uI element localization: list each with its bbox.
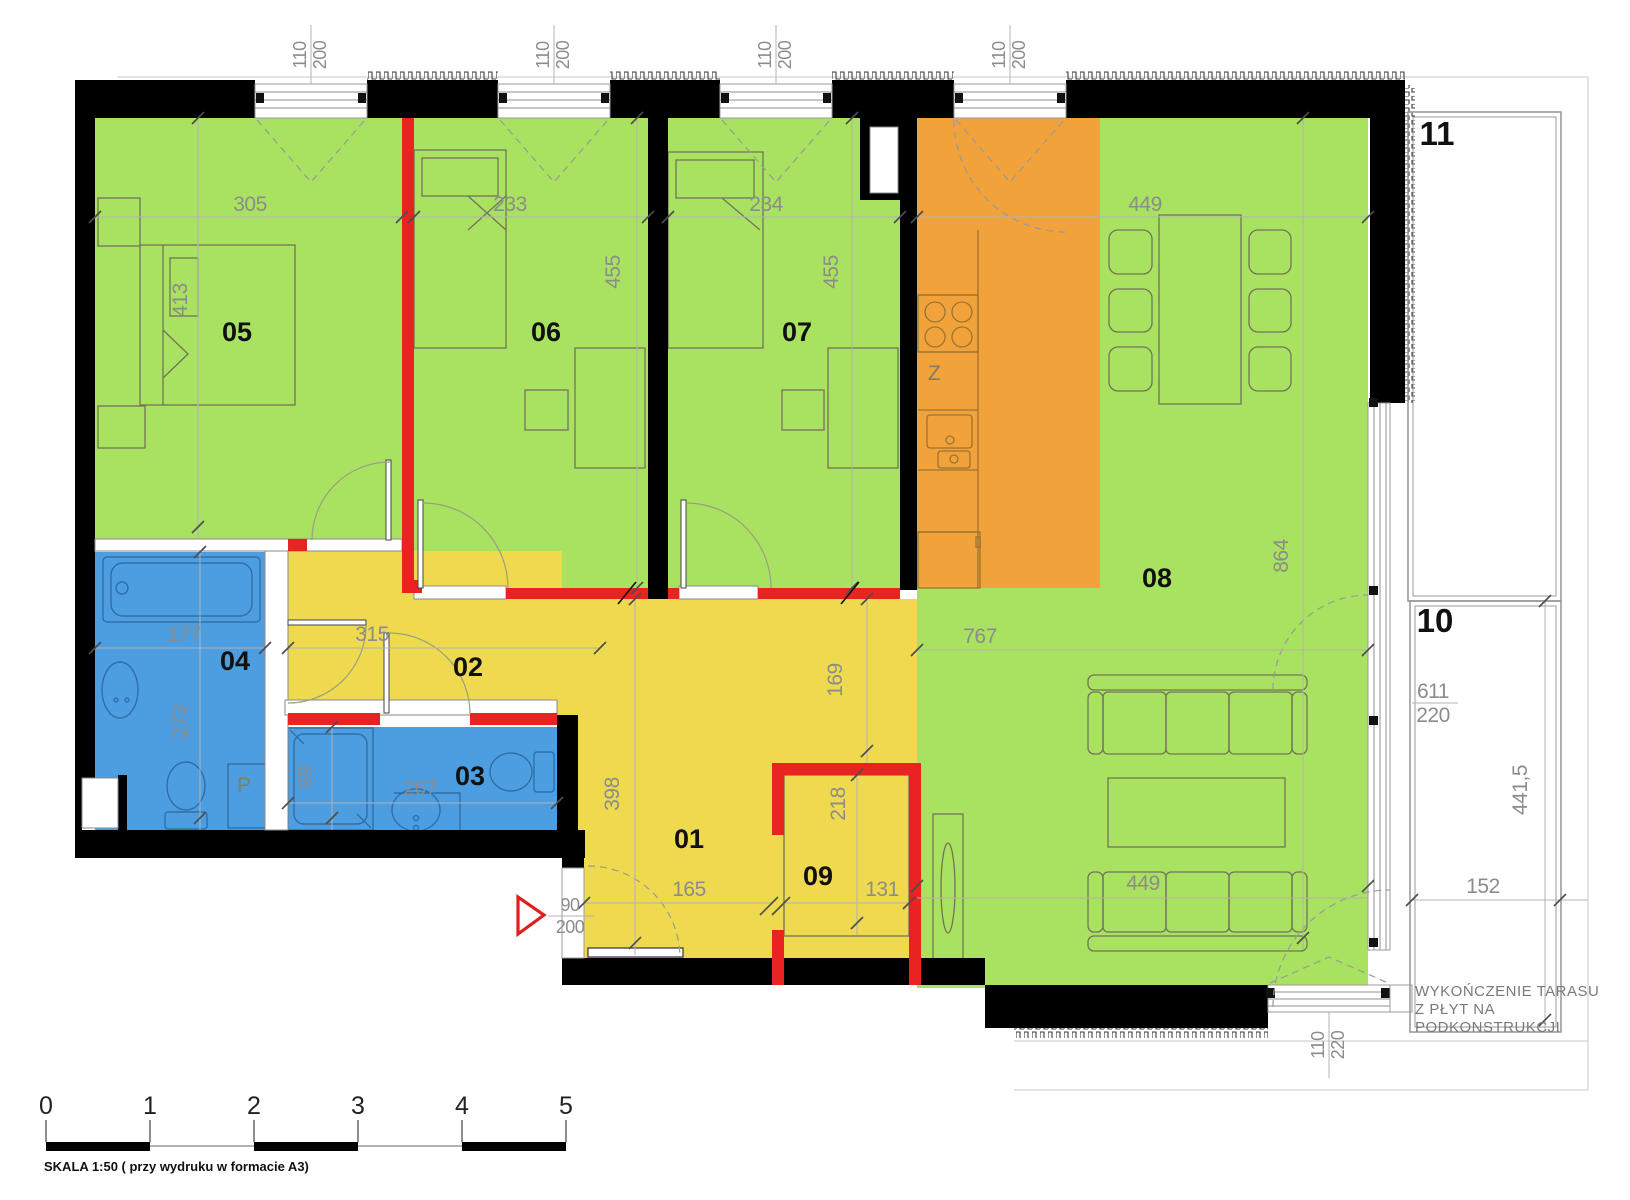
svg-text:5: 5 [559,1092,573,1120]
room-04-label: 04 [220,646,250,676]
dim-hall01-height: 398 [601,777,624,811]
dim-closet09-height: 218 [827,787,850,821]
dim-bath04-height: 273 [169,705,192,739]
svg-text:3: 3 [351,1092,365,1120]
dim-hall-kitchen: 169 [824,663,847,697]
window-dim-label: 110 200 [755,40,795,69]
svg-text:110: 110 [755,41,775,69]
room-08-label: 08 [1142,563,1172,593]
floor-plan-drawing: Z [0,0,1630,1200]
svg-text:220: 220 [1328,1030,1348,1059]
dim-terrace10-height: 441,5 [1509,765,1532,815]
room-06-label: 06 [531,317,561,347]
svg-text:PODKONSTRUKCJI: PODKONSTRUKCJI [1415,1019,1560,1036]
svg-text:WYKOŃCZENIE TARASU: WYKOŃCZENIE TARASU [1415,983,1599,1000]
window-dim-label: 110 200 [989,40,1029,69]
svg-text:0: 0 [39,1092,53,1120]
svg-text:1: 1 [143,1092,157,1120]
dim-room07-width: 234 [749,193,783,216]
dim-bath03-width: 267 [403,777,437,800]
dim-room06-width: 233 [493,193,527,216]
svg-text:Z PŁYT NA: Z PŁYT NA [1415,1001,1495,1018]
room-05-label: 05 [222,317,252,347]
room-02-label: 02 [453,652,483,682]
dim-closet09-width: 131 [865,878,899,901]
svg-text:110: 110 [533,41,553,69]
entrance-marker [518,897,544,934]
window-dim-label: 110 200 [533,40,573,69]
entrance-arrow-icon [518,897,544,934]
svg-text:200: 200 [553,40,573,69]
dim-hall02-width: 315 [355,623,389,646]
kitchen-area [917,118,1100,588]
terrace-10-label: 10 [1417,602,1454,639]
room-07-label: 07 [782,317,812,347]
svg-text:110: 110 [290,41,310,69]
terrace-note: WYKOŃCZENIE TARASU Z PŁYT NA PODKONSTRUK… [1415,983,1599,1036]
dim-hall01-width: 165 [672,878,706,901]
balcony-dim-label: 110 220 [1308,1030,1348,1059]
svg-text:110: 110 [1308,1031,1328,1059]
dim-bath04-width: 177 [167,623,201,646]
svg-text:2: 2 [247,1092,261,1120]
dim-room08-width-bottom: 449 [1126,872,1160,895]
svg-text:110: 110 [989,41,1009,69]
dim-entrance-height: 200 [556,917,585,937]
scale-caption: SKALA 1:50 ( przy wydruku w formacie A3) [44,1159,309,1174]
svg-text:4: 4 [455,1092,469,1120]
floor-plan-page: Z [0,0,1630,1200]
svg-text:200: 200 [310,40,330,69]
dim-room07-height: 455 [820,255,843,289]
dim-room05-width: 305 [233,193,267,216]
window-dim-label: 110 200 [290,40,330,69]
dim-room06-height: 455 [602,255,625,289]
dim-terrace-door-width: 611 [1417,680,1449,703]
dim-entrance-width: 90 [560,895,580,915]
dim-terrace10-width: 152 [1466,875,1500,898]
terrace-11-border [1408,112,1561,601]
svg-text:200: 200 [1009,40,1029,69]
dim-bath03-height: 99 [294,766,317,788]
dim-room05-height: 413 [169,283,192,317]
kitchen-sink-label: Z [928,362,941,385]
terrace-10-border [1410,601,1561,1032]
scale-bar: 0 1 2 3 4 5 SKALA 1:50 ( przy wydruku w … [39,1092,573,1174]
dim-room08-width-mid: 767 [963,625,997,648]
room-03-label: 03 [455,761,485,791]
room-01-label: 01 [674,824,704,854]
dim-room08-height: 864 [1270,538,1293,572]
washing-machine-label: P [237,774,251,797]
terrace-11-label: 11 [1420,115,1455,152]
room-06-area [414,118,648,588]
room-09-label: 09 [803,861,833,891]
dim-terrace-door-height: 220 [1416,704,1450,727]
svg-text:200: 200 [775,40,795,69]
dim-room08-width-top: 449 [1128,193,1162,216]
